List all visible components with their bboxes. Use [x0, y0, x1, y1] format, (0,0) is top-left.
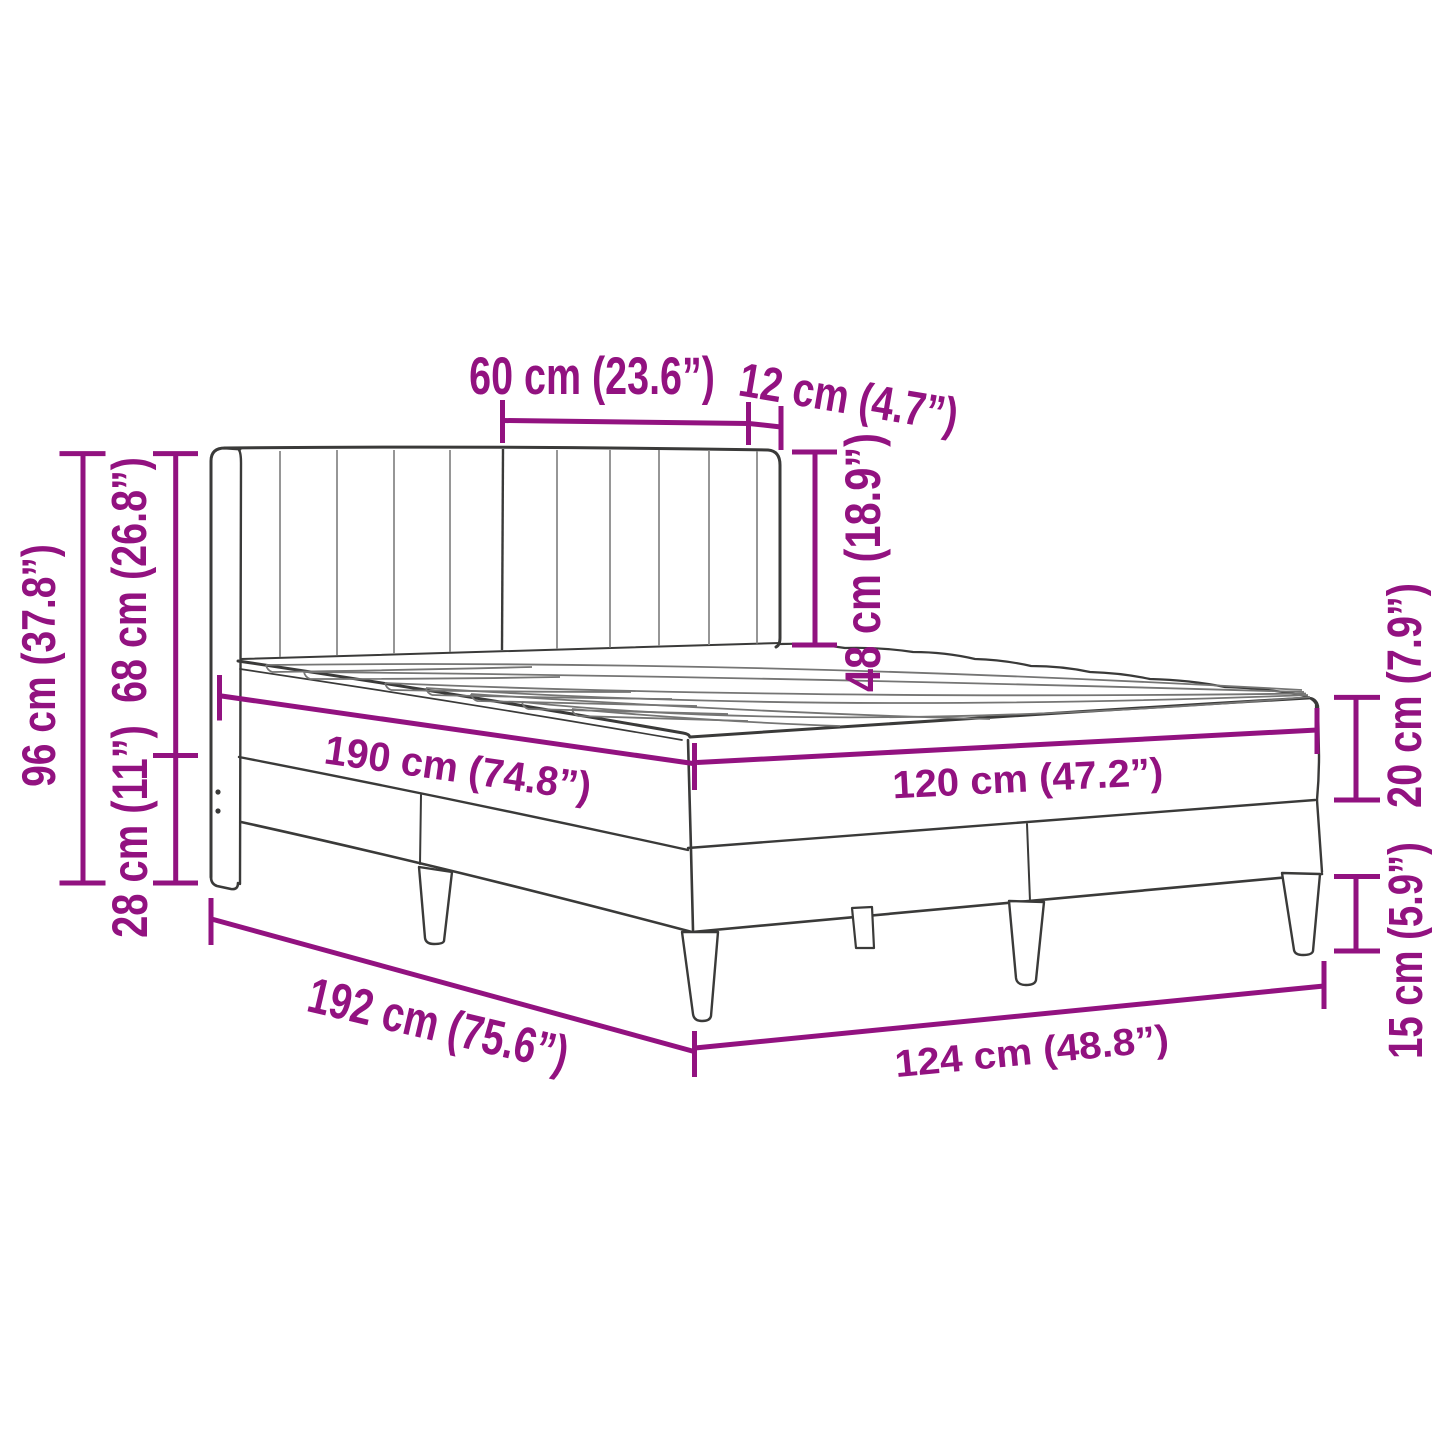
svg-text:20 cm (7.9”): 20 cm (7.9”) [1378, 583, 1431, 808]
svg-text:28 cm (11”): 28 cm (11”) [102, 725, 158, 938]
svg-text:60 cm (23.6”): 60 cm (23.6”) [469, 346, 715, 405]
svg-text:48 cm (18.9”): 48 cm (18.9”) [834, 433, 891, 692]
svg-text:96 cm (37.8”): 96 cm (37.8”) [14, 544, 66, 787]
svg-text:15 cm (5.9”): 15 cm (5.9”) [1380, 842, 1433, 1059]
svg-text:68 cm (26.8”): 68 cm (26.8”) [103, 457, 157, 703]
